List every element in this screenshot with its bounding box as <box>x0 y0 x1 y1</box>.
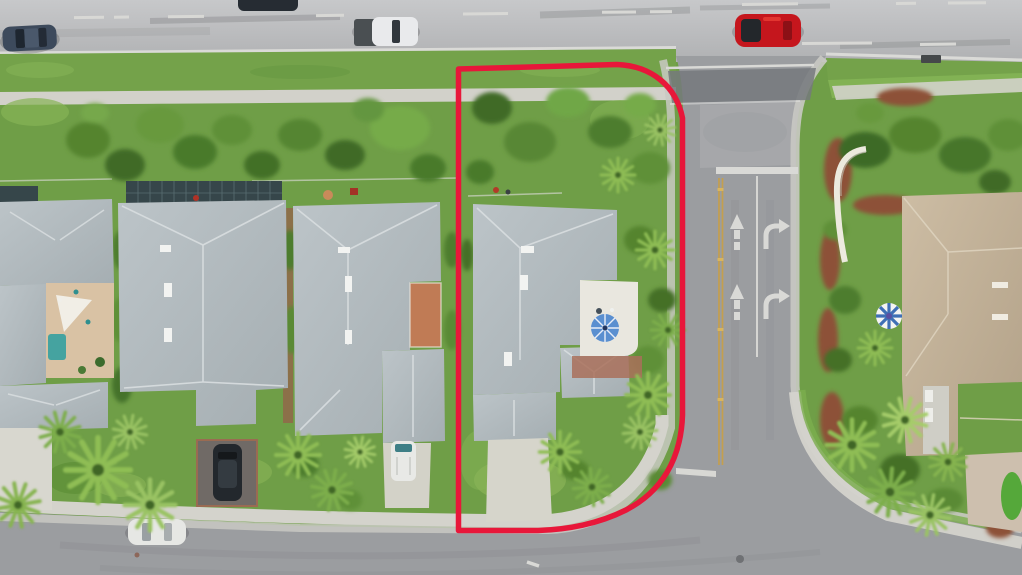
white-van-driveway <box>391 441 416 481</box>
pool <box>48 334 66 360</box>
white-pickup-main-road <box>352 17 420 46</box>
manhole <box>736 555 744 563</box>
dark-suv-driveway <box>213 444 242 501</box>
patio-table <box>323 190 333 200</box>
brick-patio-path <box>572 356 642 378</box>
striped-umbrella <box>876 303 902 329</box>
putting-green <box>1001 472 1022 520</box>
house-two <box>118 181 288 426</box>
asphalt-patch <box>668 68 816 103</box>
stop-bar-top <box>716 167 798 174</box>
storm-drain <box>921 55 941 63</box>
red-car-main-road <box>732 14 804 47</box>
partial-car-top-edge <box>238 0 298 11</box>
aerial-photo-canvas <box>0 0 1022 575</box>
aerial-photo <box>0 0 1022 575</box>
house-left-partial <box>0 186 114 431</box>
white-car-bottom-street <box>125 519 189 545</box>
terracotta-courtyard <box>410 283 441 347</box>
grill <box>193 195 199 201</box>
